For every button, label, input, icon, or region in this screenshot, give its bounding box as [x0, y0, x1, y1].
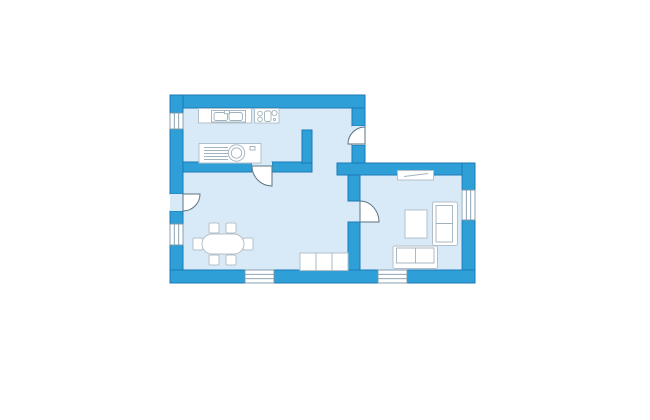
wall-upper-right-1	[352, 108, 365, 126]
wall-upper-right-2	[352, 145, 365, 163]
wall-bottom-1	[170, 270, 245, 283]
dining-table	[202, 234, 244, 254]
left-lower-window	[170, 224, 183, 245]
wall-bottom-3	[407, 270, 475, 283]
dining-chair-bottom-1	[209, 255, 219, 265]
sideboard	[300, 253, 348, 271]
faucet	[225, 111, 230, 114]
dining-chair-top-1	[209, 223, 219, 233]
left-upper-window	[170, 113, 183, 129]
coffee-table	[405, 210, 427, 238]
wall-top	[170, 95, 365, 108]
wall-bottom-2	[274, 270, 378, 283]
sink-bowl-right	[229, 113, 243, 121]
bottom-left-window	[245, 270, 274, 283]
wall-right-1	[462, 163, 475, 190]
wall-kitchen-stub	[302, 130, 312, 163]
wall-left-1	[170, 95, 183, 113]
gap-side-door	[170, 194, 183, 211]
floor-plan	[0, 0, 650, 420]
bottom-right-window	[378, 270, 407, 283]
wall-left-2	[170, 129, 183, 194]
wall-divider-lounge-1	[348, 175, 360, 201]
right-window	[462, 190, 475, 220]
dining-chair-top-2	[226, 223, 236, 233]
dining-chair-bottom-2	[226, 255, 236, 265]
wall-left-3	[170, 211, 183, 224]
wall-divider-lounge-2	[348, 222, 360, 270]
